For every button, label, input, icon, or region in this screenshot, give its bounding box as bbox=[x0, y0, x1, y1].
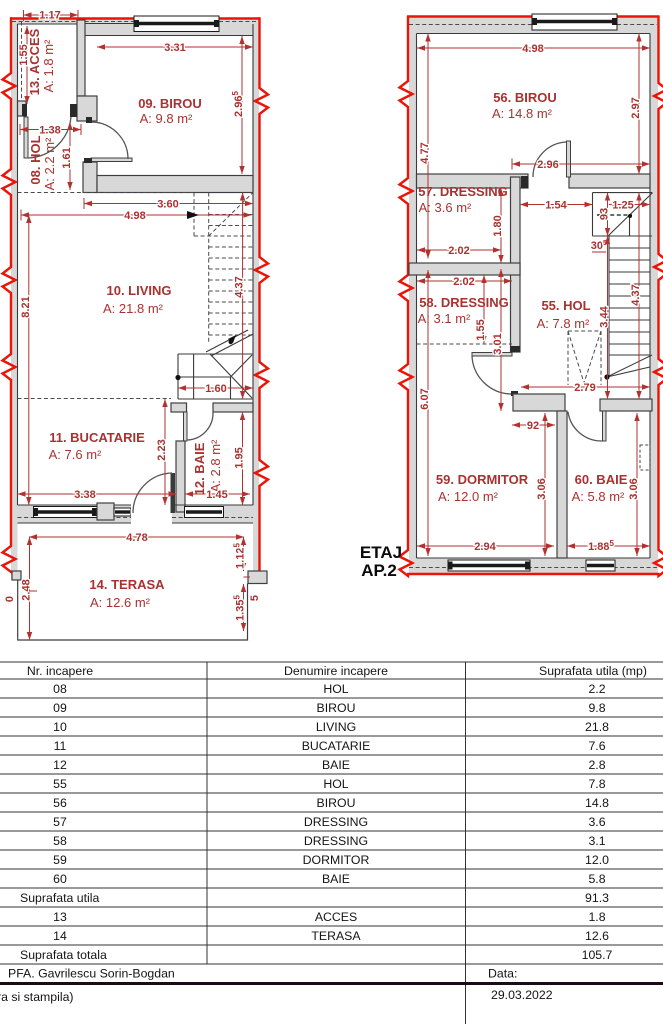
svg-text:9.8: 9.8 bbox=[588, 701, 605, 715]
svg-text:DRESSING: DRESSING bbox=[304, 815, 368, 829]
svg-text:91.3: 91.3 bbox=[585, 891, 609, 905]
svg-text:2.2: 2.2 bbox=[588, 682, 605, 696]
svg-text:DORMITOR: DORMITOR bbox=[303, 853, 370, 867]
svg-text:4.78: 4.78 bbox=[126, 532, 147, 544]
svg-text:1.60: 1.60 bbox=[205, 383, 226, 395]
svg-text:4.37: 4.37 bbox=[234, 276, 246, 297]
svg-text:A: 7.8 m²: A: 7.8 m² bbox=[537, 316, 590, 331]
svg-text:Data:: Data: bbox=[488, 966, 517, 980]
svg-text:0: 0 bbox=[4, 596, 16, 602]
svg-text:5.8: 5.8 bbox=[588, 872, 605, 886]
svg-text:Nr. incapere: Nr. incapere bbox=[27, 664, 93, 678]
svg-text:09: 09 bbox=[53, 701, 67, 715]
svg-text:55: 55 bbox=[53, 777, 67, 791]
svg-text:21.8: 21.8 bbox=[585, 720, 609, 734]
svg-text:3.38: 3.38 bbox=[74, 489, 95, 501]
svg-text:12.0: 12.0 bbox=[585, 853, 609, 867]
svg-text:2.23: 2.23 bbox=[156, 439, 168, 460]
svg-text:A: 9.8 m²: A: 9.8 m² bbox=[140, 111, 193, 126]
svg-text:56: 56 bbox=[53, 796, 67, 810]
svg-text:1.61: 1.61 bbox=[61, 147, 73, 168]
svg-text:2.79: 2.79 bbox=[574, 382, 595, 394]
svg-text:12: 12 bbox=[53, 758, 67, 772]
svg-text:A: 2.2 m²: A: 2.2 m² bbox=[42, 137, 57, 190]
svg-text:BUCATARIE: BUCATARIE bbox=[302, 739, 371, 753]
svg-text:PFA. Gavrilescu Sorin-Bogdan: PFA. Gavrilescu Sorin-Bogdan bbox=[8, 966, 175, 980]
svg-text:A: 21.8 m²: A: 21.8 m² bbox=[103, 301, 164, 316]
svg-text:1.8: 1.8 bbox=[588, 910, 605, 924]
svg-text:7.8: 7.8 bbox=[588, 777, 605, 791]
svg-text:09. BIROU: 09. BIROU bbox=[138, 96, 202, 111]
svg-text:A: 3.6 m²: A: 3.6 m² bbox=[419, 200, 472, 215]
svg-text:105.7: 105.7 bbox=[582, 948, 613, 962]
svg-text:3.60: 3.60 bbox=[157, 199, 178, 211]
svg-text:60: 60 bbox=[53, 872, 67, 886]
svg-text:Denumire incapere: Denumire incapere bbox=[284, 664, 388, 678]
svg-text:1.38: 1.38 bbox=[39, 125, 60, 137]
svg-text:3.1: 3.1 bbox=[588, 834, 605, 848]
svg-text:11. BUCATARIE: 11. BUCATARIE bbox=[49, 430, 145, 445]
svg-text:A: 5.8 m²: A: 5.8 m² bbox=[572, 489, 625, 504]
svg-text:14: 14 bbox=[53, 929, 67, 943]
svg-text:4.98: 4.98 bbox=[124, 210, 145, 222]
svg-text:ACCES: ACCES bbox=[315, 910, 357, 924]
svg-text:A: 1.8 m²: A: 1.8 m² bbox=[41, 39, 56, 92]
svg-text:55. HOL: 55. HOL bbox=[541, 298, 590, 313]
svg-text:13: 13 bbox=[53, 910, 67, 924]
svg-text:ra si stampila): ra si stampila) bbox=[0, 990, 74, 1004]
svg-text:14. TERASA: 14. TERASA bbox=[89, 577, 165, 592]
svg-text:3.6: 3.6 bbox=[588, 815, 605, 829]
svg-text:3.06: 3.06 bbox=[536, 478, 548, 499]
svg-text:Suprafata utila (mp): Suprafata utila (mp) bbox=[539, 664, 647, 678]
svg-text:A: 2.8 m²: A: 2.8 m² bbox=[208, 439, 223, 492]
svg-text:ETAJ: ETAJ bbox=[360, 543, 402, 562]
svg-text:12. BAIE: 12. BAIE bbox=[192, 442, 207, 495]
svg-text:TERASA: TERASA bbox=[311, 929, 361, 943]
svg-text:A: 7.6 m²: A: 7.6 m² bbox=[49, 447, 102, 462]
svg-text:7.6: 7.6 bbox=[588, 739, 605, 753]
svg-text:3.44: 3.44 bbox=[599, 305, 611, 327]
svg-text:93: 93 bbox=[599, 208, 611, 220]
svg-text:57. DRESSING: 57. DRESSING bbox=[418, 184, 508, 199]
svg-text:59: 59 bbox=[53, 853, 67, 867]
svg-text:6.07: 6.07 bbox=[419, 388, 431, 409]
svg-text:2.96: 2.96 bbox=[537, 159, 558, 171]
svg-text:56. BIROU: 56. BIROU bbox=[493, 90, 557, 105]
svg-text:HOL: HOL bbox=[323, 777, 348, 791]
svg-text:HOL: HOL bbox=[323, 682, 348, 696]
svg-text:59. DORMITOR: 59. DORMITOR bbox=[436, 472, 529, 487]
svg-text:4.98: 4.98 bbox=[522, 43, 543, 55]
svg-text:A: 14.8 m²: A: 14.8 m² bbox=[492, 106, 553, 121]
svg-text:1.54: 1.54 bbox=[545, 200, 567, 212]
svg-text:92: 92 bbox=[527, 420, 539, 432]
svg-text:Suprafata totala: Suprafata totala bbox=[20, 948, 107, 962]
svg-text:Suprafata utila: Suprafata utila bbox=[20, 891, 99, 905]
svg-text:BAIE: BAIE bbox=[322, 758, 350, 772]
svg-text:58. DRESSING: 58. DRESSING bbox=[419, 295, 509, 310]
svg-text:4.37: 4.37 bbox=[630, 284, 642, 305]
svg-text:10: 10 bbox=[53, 720, 67, 734]
svg-text:1.95: 1.95 bbox=[234, 447, 246, 468]
svg-text:1.55: 1.55 bbox=[475, 319, 487, 340]
svg-text:8.21: 8.21 bbox=[20, 296, 32, 317]
svg-text:1.45: 1.45 bbox=[206, 489, 227, 501]
svg-text:1.25: 1.25 bbox=[612, 200, 633, 212]
svg-text:08: 08 bbox=[53, 682, 67, 696]
svg-text:2.02: 2.02 bbox=[453, 276, 474, 288]
svg-text:A: 12.0 m²: A: 12.0 m² bbox=[438, 489, 499, 504]
svg-text:1.80: 1.80 bbox=[492, 215, 504, 236]
svg-text:29.03.2022: 29.03.2022 bbox=[491, 988, 553, 1002]
svg-text:5: 5 bbox=[249, 595, 261, 601]
svg-text:57: 57 bbox=[53, 815, 67, 829]
svg-text:12.6: 12.6 bbox=[585, 929, 609, 943]
svg-text:10. LIVING: 10. LIVING bbox=[106, 283, 171, 298]
svg-text:11: 11 bbox=[54, 739, 67, 753]
svg-text:2.94: 2.94 bbox=[474, 541, 496, 553]
svg-text:AP.2: AP.2 bbox=[361, 561, 397, 580]
svg-text:4.77: 4.77 bbox=[419, 142, 431, 163]
svg-text:2.02: 2.02 bbox=[448, 245, 469, 257]
svg-text:2.8: 2.8 bbox=[588, 758, 605, 772]
svg-text:BIROU: BIROU bbox=[317, 796, 356, 810]
svg-text:A: 3.1 m²: A: 3.1 m² bbox=[418, 311, 471, 326]
svg-text:3.31: 3.31 bbox=[164, 42, 185, 54]
svg-text:08. HOL: 08. HOL bbox=[28, 135, 43, 184]
svg-text:60. BAIE: 60. BAIE bbox=[575, 472, 628, 487]
svg-text:2.48: 2.48 bbox=[21, 579, 33, 600]
svg-text:13. ACCES: 13. ACCES bbox=[27, 28, 42, 95]
svg-text:LIVING: LIVING bbox=[316, 720, 356, 734]
svg-text:1.17: 1.17 bbox=[39, 10, 60, 22]
svg-text:DRESSING: DRESSING bbox=[304, 834, 368, 848]
svg-text:A: 12.6 m²: A: 12.6 m² bbox=[90, 595, 151, 610]
svg-text:BIROU: BIROU bbox=[317, 701, 356, 715]
svg-text:BAIE: BAIE bbox=[322, 872, 350, 886]
svg-text:3.06: 3.06 bbox=[628, 478, 640, 499]
svg-text:14.8: 14.8 bbox=[585, 796, 609, 810]
svg-text:58: 58 bbox=[53, 834, 67, 848]
svg-text:3.01: 3.01 bbox=[492, 333, 504, 354]
svg-text:2.97: 2.97 bbox=[630, 97, 642, 118]
